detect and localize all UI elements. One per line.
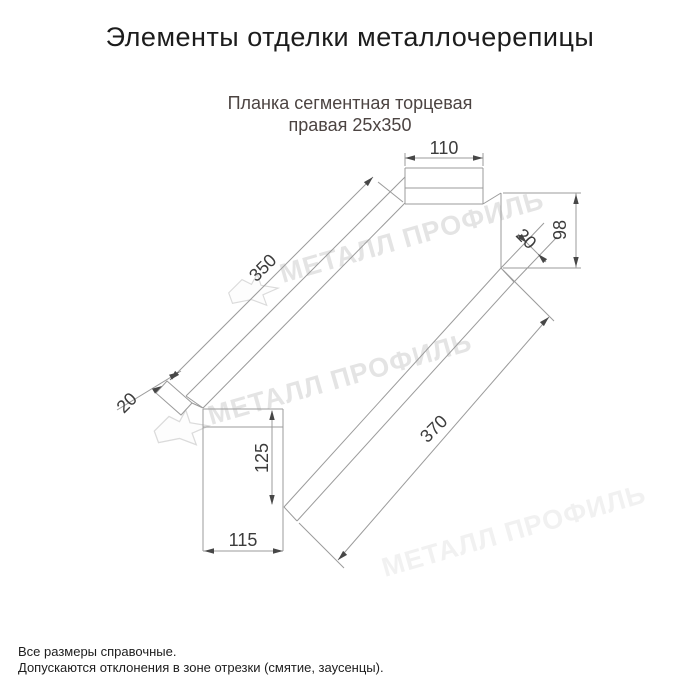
dim-20-left-label: 20 [113, 389, 141, 417]
dim-20-right-label: 20 [512, 225, 540, 253]
arrow-icon [269, 495, 274, 505]
band-bottom-outer-edge [297, 282, 514, 521]
dim-350-line [170, 177, 373, 380]
dim-115-label: 115 [229, 530, 258, 550]
dim-125-label: 125 [252, 443, 272, 473]
dim-370-label: 370 [416, 411, 451, 446]
arrow-icon [204, 548, 214, 553]
arrow-icon [473, 155, 483, 160]
footnotes: Все размеры справочные. Допускаются откл… [18, 644, 384, 676]
drawing-page: Элементы отделки металлочерепицы Планка … [0, 0, 700, 700]
arrow-icon [540, 317, 549, 326]
arrow-icon [338, 551, 347, 560]
dim-370-ext-bottom [299, 523, 344, 568]
dim-98-label: 98 [550, 220, 570, 240]
watermark-lower-faint: МЕТАЛЛ ПРОФИЛЬ [378, 479, 649, 583]
dim-370-ext-top [503, 270, 554, 321]
dim-350-label: 350 [245, 250, 280, 285]
arrow-icon [273, 548, 283, 553]
dim-110-label: 110 [430, 138, 459, 158]
dim-350-ext [378, 182, 403, 202]
arrow-icon [573, 194, 578, 204]
footnote-line2: Допускаются отклонения в зоне отрезки (с… [18, 660, 384, 676]
arrow-icon [405, 155, 415, 160]
brand-logo-icon [154, 410, 209, 445]
left-fold-tab [156, 381, 192, 415]
watermarks: МЕТАЛЛ ПРОФИЛЬ МЕТАЛЛ ПРОФИЛЬ МЕТАЛЛ ПРО… [204, 185, 649, 583]
technical-drawing: МЕТАЛЛ ПРОФИЛЬ МЕТАЛЛ ПРОФИЛЬ МЕТАЛЛ ПРО… [0, 0, 700, 700]
footnote-line1: Все размеры справочные. [18, 644, 384, 660]
band-left-hem-cut [284, 507, 297, 521]
arrow-icon [573, 257, 578, 267]
